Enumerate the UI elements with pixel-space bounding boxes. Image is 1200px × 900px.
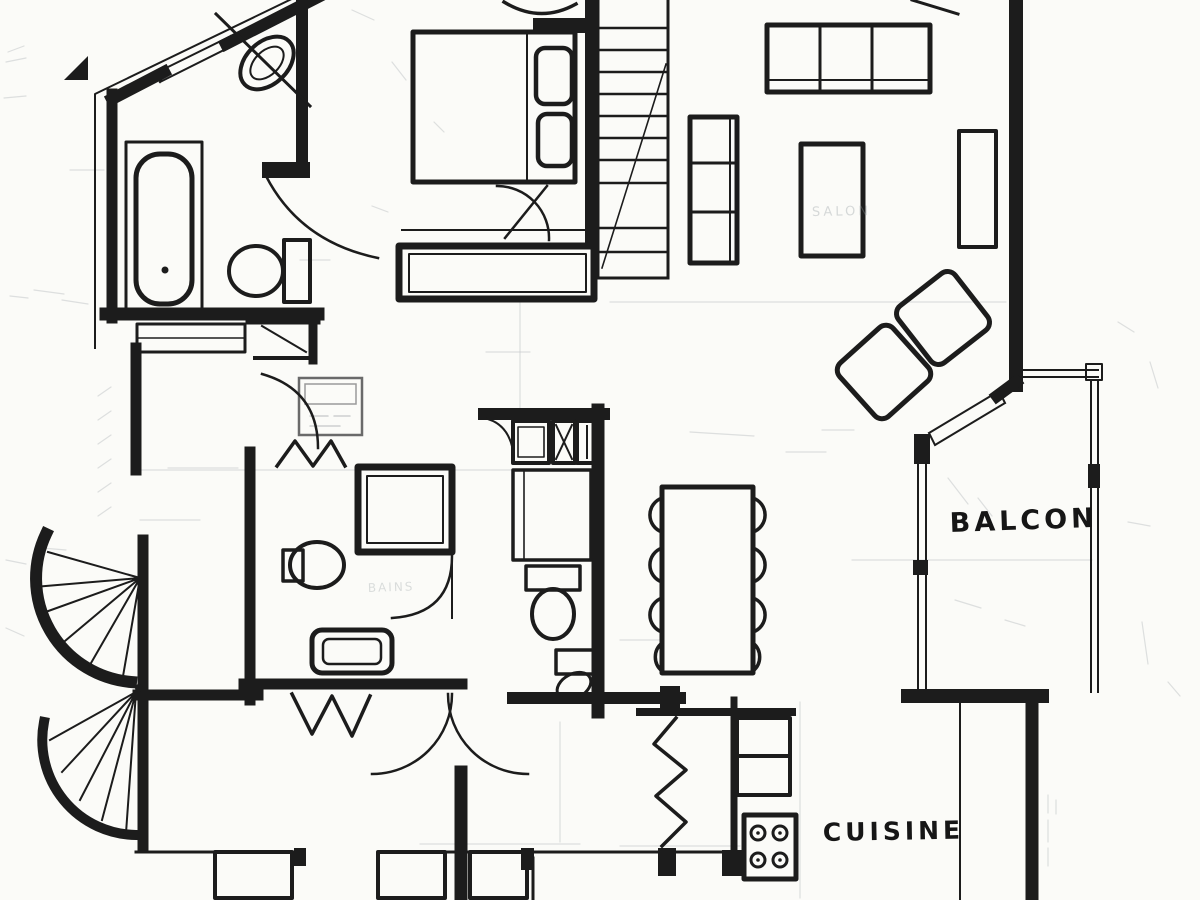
spiral-treads-lower [50, 692, 136, 833]
folding-door-kitchen [654, 718, 686, 846]
toilet2-icon [532, 589, 574, 639]
bed-icon-a [215, 852, 292, 898]
wc-room [484, 418, 598, 705]
bedroom-1 [413, 2, 576, 240]
console-table-icon [959, 131, 996, 247]
stove-icon [744, 815, 796, 879]
double-door-leaf-left [372, 694, 452, 774]
dining-area [650, 487, 765, 673]
toilet2-tank [526, 566, 580, 590]
kitchen: CUISINE [654, 718, 964, 879]
cuisine-label: CUISINE [823, 816, 965, 847]
bed-icon-c [470, 852, 527, 898]
tub-drain [162, 267, 169, 274]
toilet-icon [229, 246, 283, 296]
top-edge-fixture [504, 2, 576, 14]
shower-icon [358, 467, 452, 552]
bed-icon-b [378, 852, 445, 898]
bed-double-icon [413, 32, 575, 182]
dining-table-icon [662, 487, 753, 673]
sink2-unit [556, 650, 596, 674]
door-jamb-block [262, 162, 310, 178]
rail-post-left [913, 560, 928, 575]
floor-plan-drawing: BAINS SALON [0, 0, 1200, 900]
double-door-leaf-right [448, 694, 528, 774]
wall-post-a [294, 848, 306, 866]
wall-post-c [658, 848, 676, 876]
spiral-outer-arc-lower [42, 722, 136, 835]
coffee-table-icon [801, 144, 863, 256]
wall-post-stove [722, 850, 742, 876]
wall-diagonal-lower [112, 72, 164, 99]
counter-2 [737, 756, 790, 795]
triangle-marker [64, 56, 88, 80]
balcony: BALCON [949, 503, 1098, 539]
pillow-2 [538, 114, 572, 166]
cut-line-top-right [912, 0, 958, 14]
armchair-1-icon [833, 321, 935, 423]
bathtub-icon [136, 154, 192, 304]
closet-diagonal [262, 326, 306, 352]
wall-corner-block [914, 434, 930, 464]
armchair-2-icon [892, 267, 993, 368]
straight-staircase [598, 0, 668, 278]
salon-pencil-label: SALON [812, 204, 871, 220]
rail-post-right [1088, 464, 1100, 488]
spiral-outer-arc-upper [36, 534, 131, 682]
door-arc-wc [484, 418, 514, 460]
sofa-top-icon [767, 25, 930, 92]
wardrobe-inner [409, 254, 586, 292]
spiral-staircase [34, 534, 143, 835]
bathroom-2: BAINS [283, 467, 452, 673]
toilet-tank [284, 240, 310, 302]
balcon-label: BALCON [949, 503, 1098, 539]
hall-left [262, 374, 362, 466]
pillow-1 [536, 48, 572, 104]
wall-post-kitchen [660, 686, 680, 712]
stair-treads [598, 28, 668, 252]
bathroom-pencil-label: BAINS [368, 579, 415, 595]
balcony-rail-left [918, 464, 926, 690]
counter-1 [737, 718, 790, 756]
scanned-floor-plan-page: BAINS SALON [0, 0, 1200, 900]
balcony-rail-right [1091, 380, 1098, 692]
folding-door-upper [277, 441, 345, 466]
salon: SALON [690, 0, 996, 423]
folding-door-lower [292, 694, 370, 736]
bottom-rooms [215, 694, 528, 898]
spiral-hub [135, 684, 143, 692]
door-arc-hall [262, 374, 318, 448]
